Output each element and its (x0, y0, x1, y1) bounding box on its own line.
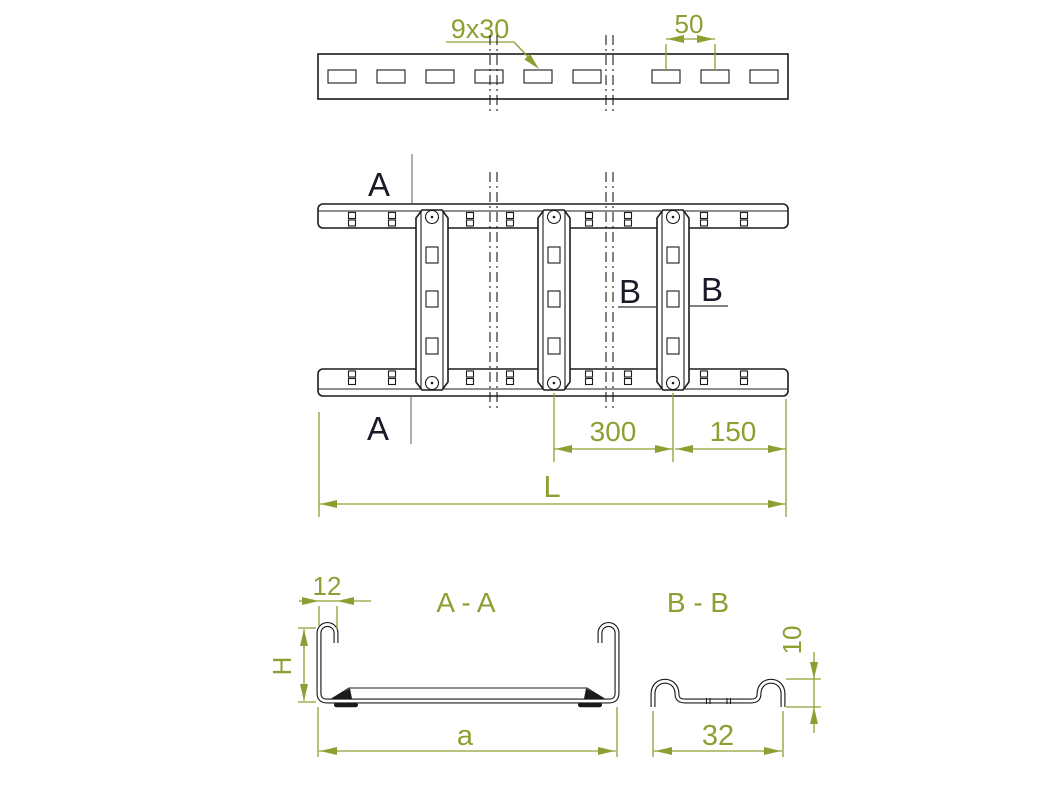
dimension-arrowhead (655, 747, 672, 755)
dimension-arrowhead (320, 500, 337, 508)
rail-slot (426, 70, 454, 83)
slot-size-text: 9x30 (451, 14, 510, 44)
section-b-label-right: B (701, 271, 723, 308)
dimension-arrowhead (300, 629, 308, 646)
rung-spacing-text: 300 (590, 416, 637, 447)
rung-end-gusset (584, 689, 605, 699)
dimension-arrowhead (555, 445, 572, 453)
height-text: H (267, 657, 297, 676)
drawing-page: 9x30 50 (0, 0, 1049, 787)
rail-slot (328, 70, 356, 83)
section-b-label-left: B (619, 273, 641, 310)
flange-width-text: 12 (313, 571, 342, 601)
rung-height-text: 10 (777, 626, 807, 655)
channel-width-dimension: a (318, 707, 617, 757)
rung (416, 210, 448, 390)
rung-width-text: 32 (702, 720, 734, 752)
rail-slot (750, 70, 778, 83)
dimension-arrowhead (300, 684, 308, 701)
section-a-label-bottom: A (367, 410, 389, 447)
technical-drawing-canvas: 9x30 50 (0, 0, 1049, 787)
rail-slot (573, 70, 601, 83)
height-dimension: H (267, 628, 316, 702)
rail-slot (701, 70, 729, 83)
section-a-marker-bottom: A (367, 397, 411, 447)
rung-fixing-foot (578, 703, 602, 708)
dimension-arrowhead (768, 500, 785, 508)
section-b-marker-right: B (690, 271, 728, 308)
rung-width-dimension: 32 (653, 711, 783, 757)
rung-end-gusset (331, 689, 352, 699)
rung-spacing-dimension: 300 (554, 393, 673, 462)
dimension-arrowhead (655, 445, 672, 453)
dimension-arrowhead (320, 747, 337, 755)
dimension-arrowhead (764, 747, 781, 755)
rail-slot (524, 70, 552, 83)
rung (657, 210, 689, 390)
dimension-arrowhead (768, 445, 785, 453)
dimension-arrowhead (598, 747, 615, 755)
plan-view-ladder: A A B B 300 150 (318, 154, 788, 517)
section-b-marker-left: B (618, 273, 656, 310)
rail-slot (377, 70, 405, 83)
hole-pitch-text: 50 (675, 9, 704, 39)
rung (538, 210, 570, 390)
dimension-arrowhead (810, 707, 818, 724)
channel-width-text: a (457, 720, 474, 752)
section-bb-title: B - B (667, 587, 729, 618)
end-distance-dimension: 150 (675, 416, 786, 453)
dimension-arrowhead (810, 662, 818, 679)
section-aa-view: A - A 12 H (267, 571, 617, 757)
rung-in-section (332, 688, 604, 699)
flange-width-dimension: 12 (299, 571, 371, 629)
section-a-label-top: A (368, 166, 390, 203)
dimension-arrowhead (697, 35, 714, 43)
channel-profile-inner (319, 625, 617, 702)
rung-fixing-foot (334, 703, 358, 708)
section-aa-title: A - A (436, 587, 495, 618)
dimension-arrowhead (676, 445, 693, 453)
rail-slot (475, 70, 503, 83)
channel-profile-outline (319, 625, 617, 702)
top-view-side-rail: 9x30 50 (318, 9, 788, 99)
end-distance-text: 150 (710, 416, 757, 447)
rail-slot (652, 70, 680, 83)
section-bb-view: B - B 10 32 (653, 587, 821, 757)
total-length-text: L (543, 469, 560, 504)
section-a-marker-top: A (368, 154, 412, 203)
